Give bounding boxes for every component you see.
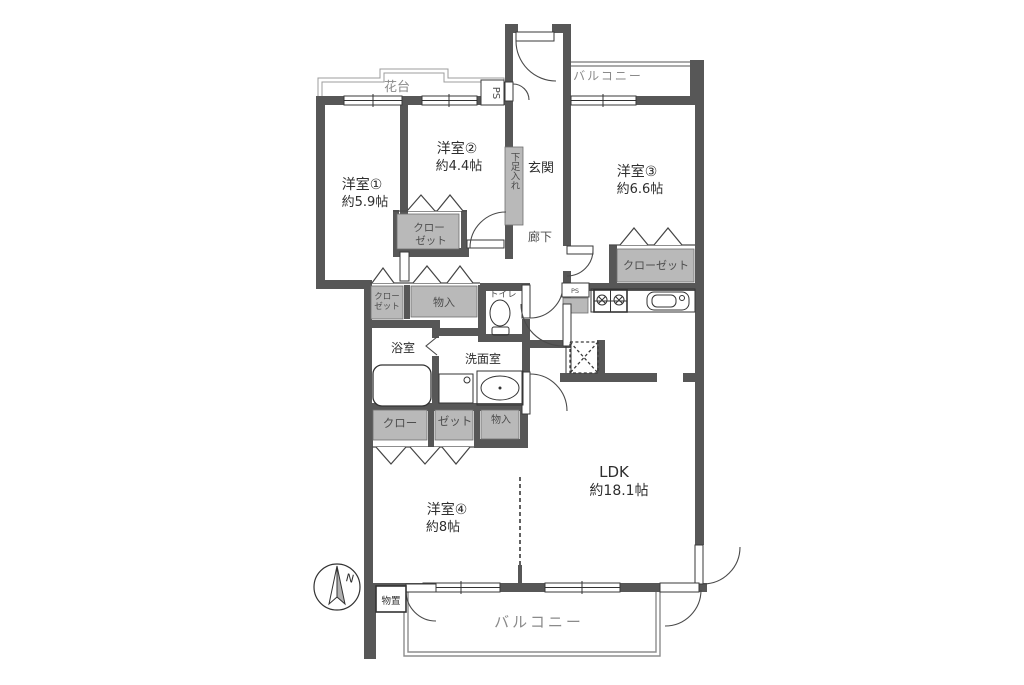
closet-room2-line1: クロー bbox=[413, 222, 445, 234]
corridor-label: 廊下 bbox=[528, 229, 552, 244]
planter-label: 花台 bbox=[384, 79, 410, 95]
closet-room4-left-label: クロー bbox=[383, 416, 418, 430]
floor-plan: N 花台 PS バルコニー 玄関 下足入れ 洋室① 約5.9帖 洋室② 約4.4… bbox=[0, 0, 1024, 685]
genkan-label: 玄関 bbox=[528, 161, 554, 176]
planter-rail bbox=[318, 69, 504, 96]
window-room3 bbox=[571, 94, 636, 107]
window-room2 bbox=[422, 94, 477, 107]
bath-label: 浴室 bbox=[391, 340, 415, 355]
closet-small-line1: クロー bbox=[374, 292, 400, 302]
bath-folding-door bbox=[426, 337, 437, 355]
room4-name: 洋室④ bbox=[427, 501, 468, 518]
windows bbox=[344, 94, 636, 594]
balcony-exit-door-bottom bbox=[660, 583, 701, 626]
shed-door bbox=[406, 584, 436, 621]
kitchen-ps-label: PS bbox=[571, 287, 579, 295]
refrigerator-space bbox=[570, 342, 598, 373]
compass: N bbox=[314, 564, 360, 610]
balcony-top-label: バルコニー bbox=[573, 69, 643, 83]
storage2-label: 物入 bbox=[491, 413, 511, 426]
room4-size: 約8帖 bbox=[426, 520, 460, 535]
window-room1 bbox=[344, 94, 402, 107]
closet-room3-label: クローゼット bbox=[623, 259, 689, 272]
room1-name: 洋室① bbox=[342, 176, 383, 193]
toilet-label: トイレ bbox=[489, 290, 516, 300]
room3-name: 洋室③ bbox=[617, 163, 658, 180]
labels: 花台 PS バルコニー 玄関 下足入れ 洋室① 約5.9帖 洋室② 約4.4帖 … bbox=[342, 69, 689, 631]
meter-box-door bbox=[505, 82, 529, 101]
vanity-sink bbox=[477, 371, 523, 405]
balcony-exit-door-side bbox=[695, 545, 740, 584]
shoe-box-label: 下足入れ bbox=[509, 152, 521, 190]
walls bbox=[316, 24, 707, 659]
toilet-door bbox=[522, 285, 563, 318]
balcony-bottom-label: バルコニー bbox=[494, 613, 584, 631]
closet-room2-line2: ゼット bbox=[415, 235, 447, 247]
room2-name: 洋室② bbox=[437, 140, 478, 157]
washing-machine-pan bbox=[439, 374, 473, 403]
storage-shed-label: 物置 bbox=[381, 595, 400, 607]
closet-small-line2: ゼット bbox=[374, 301, 400, 312]
entry-door bbox=[516, 32, 556, 81]
ldk-name: LDK bbox=[599, 463, 630, 481]
room1-size: 約5.9帖 bbox=[342, 195, 389, 210]
toilet-fixture bbox=[490, 300, 510, 335]
ps-top-label: PS bbox=[490, 87, 501, 99]
stove bbox=[594, 290, 627, 312]
bathtub bbox=[373, 365, 431, 406]
room2-size: 約4.4帖 bbox=[436, 159, 483, 174]
floor-plan-svg: N 花台 PS バルコニー 玄関 下足入れ 洋室① 約5.9帖 洋室② 約4.4… bbox=[0, 0, 1024, 685]
storage1-label: 物入 bbox=[433, 295, 455, 309]
room3-size: 約6.6帖 bbox=[617, 182, 664, 197]
room2-door bbox=[467, 212, 506, 248]
window-ldk bbox=[545, 581, 620, 594]
ldk-size: 約18.1帖 bbox=[589, 483, 648, 499]
closet-room4-right-label: ゼット bbox=[438, 414, 473, 428]
kitchen-sink bbox=[647, 292, 689, 310]
washroom-label: 洗面室 bbox=[465, 351, 501, 366]
balcony-top-rail bbox=[571, 62, 690, 66]
room1-door bbox=[400, 252, 409, 281]
